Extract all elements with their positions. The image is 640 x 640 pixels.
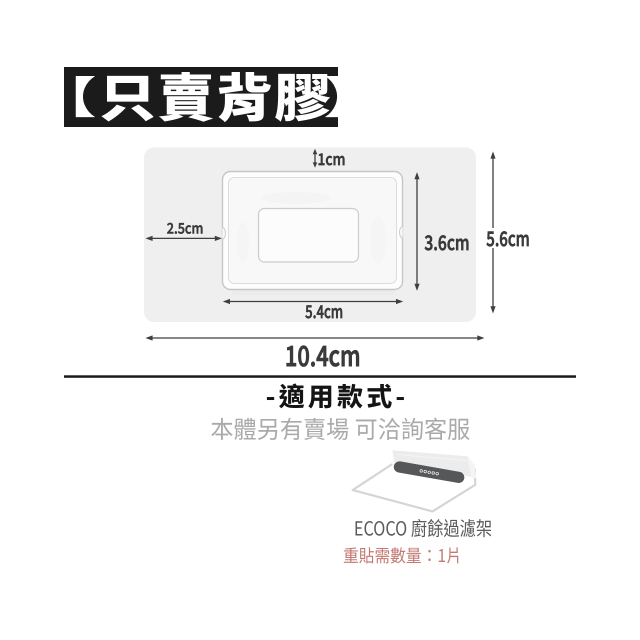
svg-text:10.4cm: 10.4cm bbox=[285, 335, 361, 375]
svg-text:只賣背膠: 只賣背膠 bbox=[99, 57, 333, 132]
svg-text:】: 】 bbox=[324, 63, 384, 126]
svg-text:【: 【 bbox=[37, 63, 97, 126]
svg-text:本體另有賣場 可洽詢客服: 本體另有賣場 可洽詢客服 bbox=[210, 411, 470, 446]
svg-text:5.6cm: 5.6cm bbox=[486, 224, 529, 252]
svg-text:5.4cm: 5.4cm bbox=[305, 299, 343, 324]
svg-text:3.6cm: 3.6cm bbox=[424, 228, 469, 257]
svg-text:-適用款式-: -適用款式- bbox=[266, 377, 409, 414]
svg-text:2.5cm: 2.5cm bbox=[167, 216, 204, 237]
svg-text:ECOCO 廚餘過濾架: ECOCO 廚餘過濾架 bbox=[354, 514, 492, 542]
svg-text:1cm: 1cm bbox=[318, 148, 346, 171]
svg-text:重貼需數量：1片: 重貼需數量：1片 bbox=[343, 542, 462, 567]
